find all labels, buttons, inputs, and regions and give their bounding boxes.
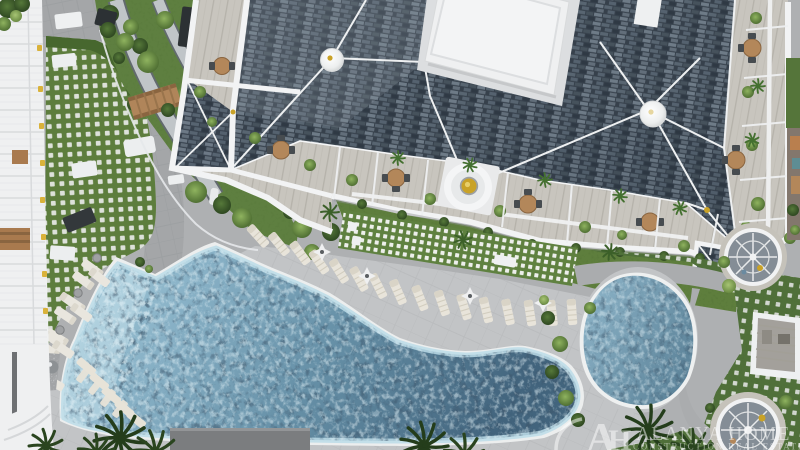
svg-text:H: H xyxy=(608,424,631,450)
svg-text:CONSTRUCTION REAL ESTATE: CONSTRUCTION REAL ESTATE xyxy=(633,442,800,450)
